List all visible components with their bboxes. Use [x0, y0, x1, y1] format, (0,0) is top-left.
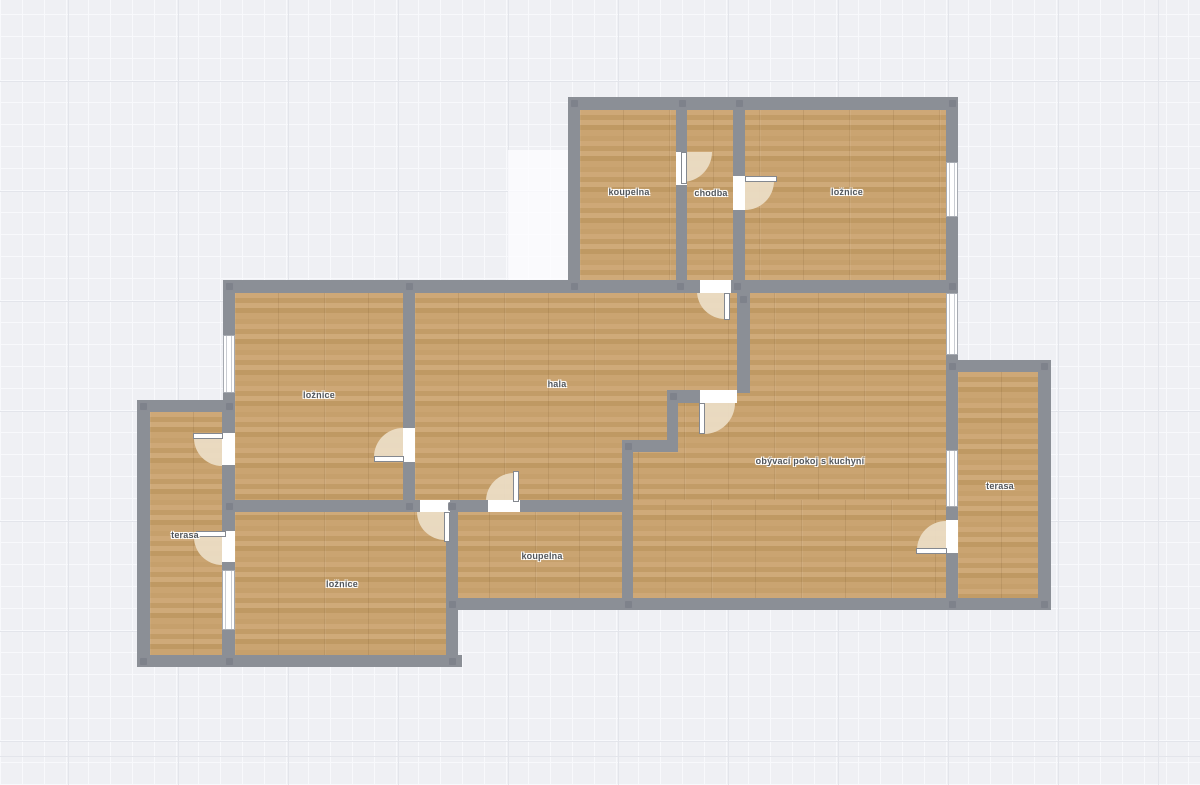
- wall[interactable]: [946, 110, 958, 162]
- wall-joint: [570, 99, 579, 108]
- wall-joint: [733, 282, 742, 291]
- wall-joint: [624, 600, 633, 609]
- wall[interactable]: [223, 500, 420, 512]
- wall[interactable]: [737, 293, 750, 393]
- window[interactable]: [223, 335, 235, 393]
- wall[interactable]: [733, 110, 745, 176]
- window[interactable]: [946, 293, 958, 355]
- room-floor[interactable]: [235, 500, 446, 655]
- wall[interactable]: [946, 360, 1051, 372]
- wall-joint: [669, 392, 678, 401]
- room-label-chodba: chodba: [694, 188, 727, 198]
- wall[interactable]: [403, 293, 415, 428]
- wall[interactable]: [137, 400, 235, 412]
- room-label-hala: hala: [548, 379, 567, 389]
- wall-joint: [225, 282, 234, 291]
- wall[interactable]: [946, 217, 958, 280]
- window[interactable]: [222, 570, 235, 630]
- wall-joint: [676, 282, 685, 291]
- room-floor[interactable]: [446, 500, 633, 598]
- door-leaf[interactable]: [196, 531, 226, 537]
- door-leaf[interactable]: [374, 456, 404, 462]
- door-leaf[interactable]: [193, 433, 223, 439]
- window[interactable]: [946, 162, 958, 217]
- door-opening[interactable]: [700, 390, 737, 403]
- door-leaf[interactable]: [699, 403, 705, 434]
- wall-joint: [948, 600, 957, 609]
- door-leaf[interactable]: [444, 512, 450, 542]
- floorplan[interactable]: koupelna chodba ložnice ložnice hala obý…: [0, 0, 1200, 785]
- room-floor[interactable]: [622, 500, 946, 598]
- wall[interactable]: [1038, 372, 1051, 610]
- wall[interactable]: [520, 500, 633, 512]
- door-leaf[interactable]: [681, 152, 687, 184]
- wall[interactable]: [622, 598, 958, 610]
- wall-joint: [948, 99, 957, 108]
- balcony-area: [508, 150, 568, 280]
- door-opening[interactable]: [733, 176, 745, 210]
- wall-joint: [739, 295, 748, 304]
- wall[interactable]: [733, 210, 745, 280]
- wall-joint: [139, 657, 148, 666]
- wall-joint: [225, 402, 234, 411]
- wall[interactable]: [622, 452, 633, 598]
- door-opening[interactable]: [946, 520, 958, 553]
- wall-joint: [405, 502, 414, 511]
- wall[interactable]: [222, 562, 235, 570]
- wall[interactable]: [222, 630, 235, 655]
- wall[interactable]: [676, 110, 687, 152]
- wall-joint: [678, 99, 687, 108]
- room-label-obyvaci-pokoj: obývací pokoj s kuchyní: [756, 456, 865, 466]
- wall-joint: [448, 600, 457, 609]
- room-floor[interactable]: [235, 293, 946, 500]
- door-leaf[interactable]: [724, 293, 730, 320]
- wall[interactable]: [137, 412, 150, 667]
- wall[interactable]: [568, 97, 958, 110]
- room-label-terasa-right: terasa: [986, 481, 1014, 491]
- wall-joint: [225, 502, 234, 511]
- door-opening[interactable]: [222, 433, 235, 465]
- wall[interactable]: [223, 293, 235, 335]
- room-label-koupelna-bottom: koupelna: [521, 551, 562, 561]
- room-label-loznice-left: ložnice: [303, 390, 335, 400]
- wall[interactable]: [676, 185, 687, 280]
- door-leaf[interactable]: [916, 548, 947, 554]
- door-leaf[interactable]: [513, 471, 519, 502]
- wall-joint: [624, 442, 633, 451]
- room-label-loznice-bottom: ložnice: [326, 579, 358, 589]
- wall[interactable]: [446, 598, 633, 610]
- wall-joint: [735, 99, 744, 108]
- door-opening[interactable]: [403, 428, 415, 462]
- wall[interactable]: [731, 280, 958, 293]
- wall[interactable]: [946, 553, 958, 598]
- wall-joint: [570, 282, 579, 291]
- window[interactable]: [946, 450, 958, 507]
- wall[interactable]: [222, 412, 235, 433]
- wall[interactable]: [137, 655, 462, 667]
- room-label-loznice-top: ložnice: [831, 187, 863, 197]
- room-label-koupelna-top: koupelna: [608, 187, 649, 197]
- wall-joint: [405, 282, 414, 291]
- wall-joint: [948, 282, 957, 291]
- door-leaf[interactable]: [745, 176, 777, 182]
- wall-joint: [225, 657, 234, 666]
- wall-joint: [139, 402, 148, 411]
- wall[interactable]: [946, 507, 958, 520]
- wall[interactable]: [958, 598, 1051, 610]
- wall-joint: [448, 502, 457, 511]
- wall-joint: [1040, 362, 1049, 371]
- wall-joint: [948, 362, 957, 371]
- wall[interactable]: [568, 110, 580, 293]
- wall[interactable]: [222, 465, 235, 531]
- wall[interactable]: [223, 280, 700, 293]
- room-label-terasa-left: terasa: [171, 530, 199, 540]
- wall-joint: [448, 657, 457, 666]
- door-opening[interactable]: [420, 500, 450, 512]
- door-opening[interactable]: [700, 280, 731, 293]
- wall-joint: [1040, 600, 1049, 609]
- floorplan-canvas: koupelna chodba ložnice ložnice hala obý…: [0, 0, 1200, 785]
